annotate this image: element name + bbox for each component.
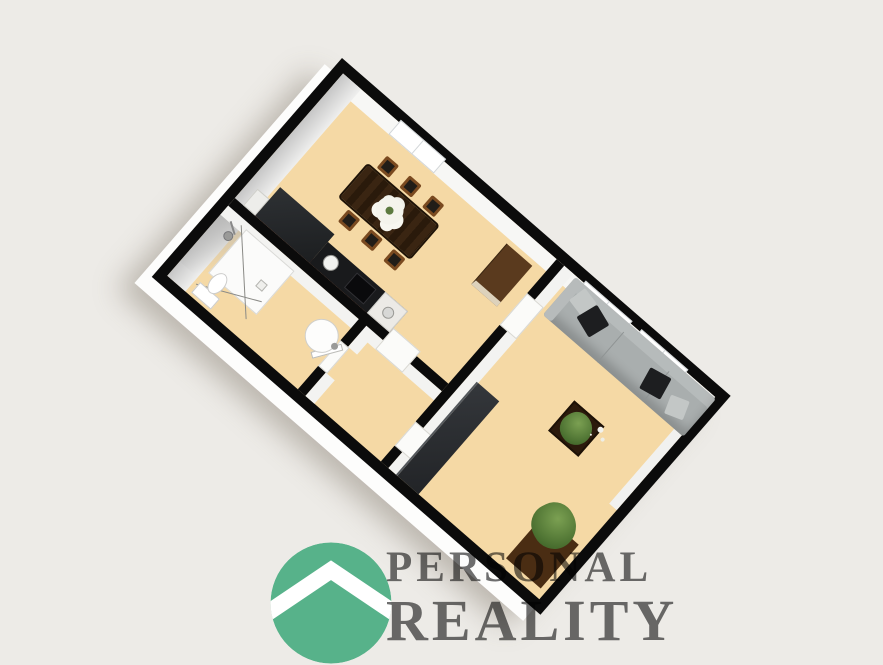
- brand-logo-icon: [268, 540, 394, 665]
- mountain-circle-icon: [268, 540, 394, 665]
- floor-plan: [152, 58, 731, 615]
- brand-wordmark: PERSONAL REALITY: [386, 546, 678, 650]
- brand-line-1: PERSONAL: [386, 546, 678, 590]
- floorplan-canvas: PERSONAL REALITY: [0, 0, 883, 665]
- brand-line-2: REALITY: [386, 592, 678, 650]
